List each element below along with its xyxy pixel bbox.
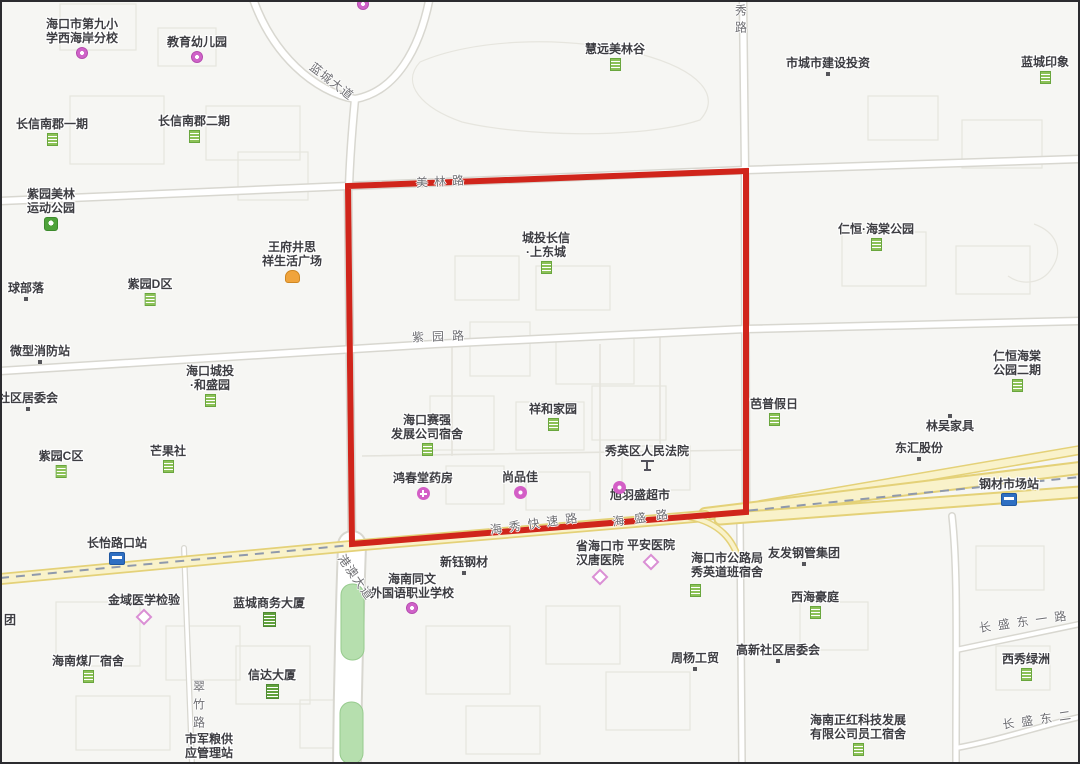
dot-icon: [917, 457, 921, 461]
road-label: 紫园路: [412, 326, 473, 345]
residence-icon: [204, 394, 215, 407]
poi-label-text: 紫园美林: [27, 187, 75, 201]
poi-label-text: 海南正红科技发展: [810, 713, 906, 727]
poi-label-bapu-holiday[interactable]: 芭普假日: [750, 397, 798, 426]
residence-icon: [768, 413, 779, 426]
poi-label-text: 海口城投: [186, 364, 234, 378]
school-icon: [406, 602, 418, 614]
poi-label-ziyuan-meilin-sports-park[interactable]: 紫园美林运动公园: [27, 187, 75, 231]
hospital-icon: [136, 609, 153, 626]
poi-label-hainan-zhenghong-tech-dormitory[interactable]: 海南正红科技发展有限公司员工宿舍: [810, 713, 906, 756]
dot-icon: [38, 360, 42, 364]
poi-label-text: 高新社区居委会: [736, 643, 820, 657]
poi-label-text: 仁恒海棠: [993, 349, 1041, 363]
poi-label-xiuying-district-peoples-court[interactable]: 秀英区人民法院: [605, 444, 689, 471]
poi-label-text: 外国语职业学校: [370, 586, 454, 600]
poi-label-text: 秀英道班宿舍: [691, 565, 763, 579]
road-label: 蓝城大道: [306, 58, 357, 103]
poi-label-text: 运动公园: [27, 201, 75, 215]
poi-label-text: 尚品佳: [502, 470, 538, 484]
road-label: 美林路: [416, 171, 471, 191]
label-layer: 海口市第九小学西海岸分校教育幼儿园慧远美林谷市城市建设投资蓝城印象长信南郡一期长…: [0, 0, 1080, 764]
poi-label-text: 新钰钢材: [440, 555, 488, 569]
school-icon: [76, 47, 88, 59]
poi-label-text: 学西海岸分校: [46, 31, 118, 45]
poi-label-text: 芒果社: [150, 444, 186, 458]
shop-icon: [513, 486, 526, 499]
poi-label-text: 蓝城商务大厦: [233, 596, 305, 610]
dot-icon: [776, 659, 780, 663]
poi-label-mangguoshe[interactable]: 芒果社: [150, 444, 186, 473]
dot-icon: [24, 297, 28, 301]
residence-icon: [1011, 379, 1022, 392]
poi-label-text: 西秀绿洲: [1002, 652, 1050, 666]
residence-icon: [871, 238, 882, 251]
poi-label-highway-bureau-dormitory[interactable]: 海口市公路局秀英道班宿舍: [691, 551, 763, 579]
road-label: 秀路: [733, 4, 750, 38]
bus-icon: [109, 552, 125, 565]
dot-icon: [693, 667, 697, 671]
poi-label-text: 教育幼儿园: [167, 35, 227, 49]
road-label: 翠竹路: [191, 680, 208, 734]
poi-label-chengtou-changxin-shangdongcheng[interactable]: 城投长信·上东城: [522, 231, 570, 274]
poi-label-renheng-haitang-park[interactable]: 仁恒·海棠公园: [838, 222, 914, 251]
poi-label-gaoxin-community-committee[interactable]: 高新社区居委会: [736, 643, 820, 663]
road-label: 长盛东二: [1001, 705, 1079, 732]
poi-label-text: 公园二期: [993, 363, 1041, 377]
poi-label-shangpinjia[interactable]: 尚品佳: [502, 470, 538, 499]
poi-label-text: 长信南郡二期: [158, 114, 230, 128]
poi-label-text: 汉唐医院: [576, 553, 624, 567]
court-icon: [640, 460, 653, 471]
poi-label-hongchuntang-pharmacy[interactable]: 鸿春堂药房: [393, 471, 453, 500]
residence-icon: [82, 670, 93, 683]
poi-label-text: 蓝城印象: [1021, 55, 1069, 69]
poi-label-city-construction-investment[interactable]: 市城市建设投资: [786, 56, 870, 76]
road-label: 海秀快速路: [489, 508, 585, 538]
poi-label-text: 长怡路口站: [87, 536, 147, 550]
residence-icon: [1020, 668, 1031, 681]
poi-label-text: 市城市建设投资: [786, 56, 870, 70]
poi-label-text: 信达大厦: [248, 668, 296, 682]
poi-label-text: 微型消防站: [10, 344, 70, 358]
pharmacy-icon: [416, 487, 429, 500]
residence-icon: [852, 743, 863, 756]
residence-icon[interactable]: [690, 584, 701, 597]
poi-label-text: 有限公司员工宿舍: [810, 727, 906, 741]
mall-icon: [284, 270, 299, 283]
poi-label-text: 林吴家具: [926, 419, 974, 433]
residence-icon: [547, 418, 558, 431]
poi-label-xihai-haoting[interactable]: 西海豪庭: [791, 590, 839, 619]
dot-icon: [26, 407, 30, 411]
residence-icon: [188, 130, 199, 143]
poi-label-text: 秀英区人民法院: [605, 444, 689, 458]
poi-label-text: ·上东城: [526, 245, 566, 259]
poi-label-text: 海南同文: [388, 572, 436, 586]
poi-label-text: 团: [4, 613, 16, 627]
poi-label-text: 王府井思: [268, 240, 316, 254]
poi-label-renheng-haitang-park-phase2[interactable]: 仁恒海棠公园二期: [993, 349, 1041, 392]
poi-label-qiu-buluo[interactable]: 球部落: [8, 281, 44, 301]
park-icon: [44, 217, 58, 231]
shop-icon[interactable]: [613, 481, 626, 494]
poi-label-text: 城投长信: [522, 231, 570, 245]
residence-icon: [1039, 71, 1050, 84]
poi-label-text: 周杨工贸: [671, 651, 719, 665]
office-icon: [265, 684, 278, 699]
dot-icon: [462, 571, 466, 575]
dot-icon: [826, 72, 830, 76]
poi-label-text: 金域医学检验: [108, 593, 180, 607]
poi-label-lancheng-impression[interactable]: 蓝城印象: [1021, 55, 1069, 84]
hospital-icon: [592, 569, 609, 586]
poi-label-changyi-road-crossing-station[interactable]: 长怡路口站: [87, 536, 147, 565]
poi-label-community-committee[interactable]: 社区居委会: [0, 391, 58, 411]
poi-label-text: 慧远美林谷: [585, 42, 645, 56]
poi-label-haikou-saiqiang-dormitory[interactable]: 海口赛强发展公司宿舍: [391, 413, 463, 456]
poi-label-text: 海口市第九小: [46, 17, 118, 31]
poi-label-text: 海口市公路局: [691, 551, 763, 565]
poi-label-text: 祥生活广场: [262, 254, 322, 268]
road-label: 海盛路: [611, 504, 679, 530]
poi-label-tuan-partial[interactable]: 团: [4, 613, 16, 627]
poi-label-text: 社区居委会: [0, 391, 58, 405]
dot-icon[interactable]: [948, 414, 952, 418]
poi-label-donghui-gufen[interactable]: 东汇股份: [895, 441, 943, 461]
poi-label-ziyuan-c-zone[interactable]: 紫园C区: [39, 449, 84, 478]
dot-icon: [802, 562, 806, 566]
poi-label-text: 海南煤厂宿舍: [52, 654, 124, 668]
poi-label-xixiu-oasis[interactable]: 西秀绿洲: [1002, 652, 1050, 681]
road-label: 长盛东一路: [978, 606, 1074, 636]
poi-label-city-military-grain-station[interactable]: 市军粮供应管理站: [185, 732, 233, 760]
poi-label-jinyu-medical-lab[interactable]: 金域医学检验: [108, 593, 180, 623]
office-icon: [262, 612, 275, 627]
poi-label-hainan-coal-factory-dormitory[interactable]: 海南煤厂宿舍: [52, 654, 124, 683]
poi-label-wangfujing-sixiang-life-plaza[interactable]: 王府井思祥生活广场: [262, 240, 322, 283]
residence-icon: [609, 58, 620, 71]
poi-label-hantang-hospital[interactable]: 省海口市汉唐医院: [576, 539, 624, 583]
poi-label-steel-market-station[interactable]: 钢材市场站: [979, 477, 1039, 506]
poi-label-xinyu-steel[interactable]: 新钰钢材: [440, 555, 488, 575]
poi-label-text: 长信南郡一期: [16, 117, 88, 131]
poi-label-text: 省海口市: [576, 539, 624, 553]
map-viewport[interactable]: 海口市第九小学西海岸分校教育幼儿园慧远美林谷市城市建设投资蓝城印象长信南郡一期长…: [0, 0, 1080, 764]
poi-label-changxin-nanjun-phase2[interactable]: 长信南郡二期: [158, 114, 230, 143]
residence-icon: [55, 465, 66, 478]
residence-icon: [162, 460, 173, 473]
poi-label-text: 鸿春堂药房: [393, 471, 453, 485]
poi-label-text: 芭普假日: [750, 397, 798, 411]
poi-label-text: 紫园C区: [39, 449, 84, 463]
residence-icon: [46, 133, 57, 146]
poi-label-huiyuan-meilin-valley[interactable]: 慧远美林谷: [585, 42, 645, 71]
poi-label-xianghe-jiayuan[interactable]: 祥和家园: [529, 402, 577, 431]
poi-label-pingan-hospital[interactable]: 平安医院: [627, 538, 675, 568]
bus-icon: [1001, 493, 1017, 506]
poi-label-text: 祥和家园: [529, 402, 577, 416]
poi-label-text: 球部落: [8, 281, 44, 295]
poi-label-text: 钢材市场站: [979, 477, 1039, 491]
school-icon[interactable]: [357, 0, 369, 10]
poi-label-text: 应管理站: [185, 746, 233, 760]
poi-label-lancheng-business-building[interactable]: 蓝城商务大厦: [233, 596, 305, 627]
poi-label-text: ·和盛园: [190, 378, 230, 392]
poi-label-changxin-nanjun-phase1[interactable]: 长信南郡一期: [16, 117, 88, 146]
poi-label-xinda-building[interactable]: 信达大厦: [248, 668, 296, 699]
poi-label-text: 发展公司宿舍: [391, 427, 463, 441]
school-icon: [191, 51, 203, 63]
poi-label-text: 仁恒·海棠公园: [838, 222, 914, 236]
poi-label-text: 东汇股份: [895, 441, 943, 455]
hospital-icon: [643, 554, 660, 571]
poi-label-text: 市军粮供: [185, 732, 233, 746]
poi-label-text: 友发钢管集团: [768, 546, 840, 560]
residence-icon: [540, 261, 551, 274]
poi-label-haikou-9th-primary-school-west-coast-branch[interactable]: 海口市第九小学西海岸分校: [46, 17, 118, 59]
poi-label-text: 紫园D区: [128, 277, 173, 291]
residence-icon: [421, 443, 432, 456]
poi-label-micro-fire-station[interactable]: 微型消防站: [10, 344, 70, 364]
poi-label-haikou-chengtou-heshengyuan[interactable]: 海口城投·和盛园: [186, 364, 234, 407]
poi-label-hainan-tongwen-foreign-language-school[interactable]: 海南同文外国语职业学校: [370, 572, 454, 614]
poi-label-text: 西海豪庭: [791, 590, 839, 604]
poi-label-text: 海口赛强: [403, 413, 451, 427]
poi-label-linwu-furniture[interactable]: 林吴家具: [926, 419, 974, 433]
poi-label-zhouyang-gongmao[interactable]: 周杨工贸: [671, 651, 719, 671]
poi-label-ziyuan-d-zone[interactable]: 紫园D区: [128, 277, 173, 306]
poi-label-youfa-steel-pipe-group[interactable]: 友发钢管集团: [768, 546, 840, 566]
poi-label-education-kindergarten[interactable]: 教育幼儿园: [167, 35, 227, 63]
residence-icon: [809, 606, 820, 619]
residence-icon: [144, 293, 155, 306]
poi-label-text: 平安医院: [627, 538, 675, 552]
